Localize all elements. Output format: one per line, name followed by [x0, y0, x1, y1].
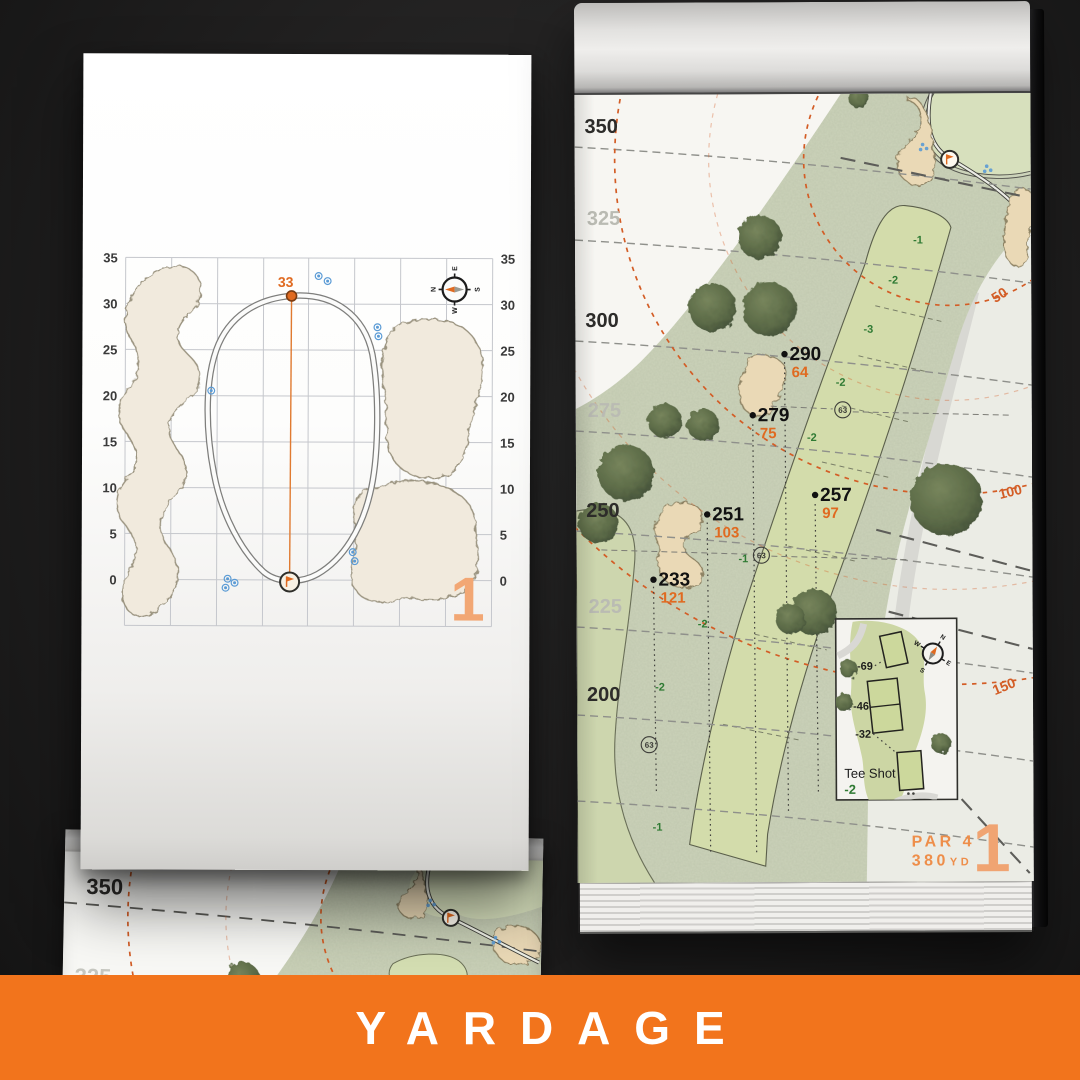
svg-text:10: 10 — [102, 480, 117, 495]
svg-text:W: W — [912, 640, 922, 650]
strip-dividers — [721, 305, 943, 740]
tree-icon — [922, 699, 956, 733]
tree-icon — [848, 93, 868, 108]
svg-text:275: 275 — [588, 400, 621, 422]
tee-shot-label: Tee Shot — [844, 766, 896, 781]
hole-map: 63 63 63 — [574, 93, 1033, 883]
tree-icon — [578, 503, 618, 543]
bunker-shape — [739, 355, 786, 417]
sprinkler-icon — [375, 333, 382, 340]
yardage-book-mockup: 350 325 35 — [0, 0, 1080, 1080]
carry-marker: 233 121 — [650, 570, 690, 607]
yardage-banner: YARDAGE — [0, 975, 1080, 1080]
tee-ground — [850, 620, 926, 801]
tree-icon — [931, 733, 951, 753]
hole-number: 1 — [450, 566, 485, 635]
hole-footer: PAR 4 380YD 1 — [911, 810, 1010, 883]
distance-label: 350 — [86, 874, 123, 900]
flag-pin-icon — [941, 151, 958, 168]
svg-text:325: 325 — [587, 208, 620, 230]
pin-depth-label: 33 — [278, 274, 294, 290]
svg-text:251: 251 — [712, 504, 744, 525]
hole-map-book: 63 63 63 — [574, 1, 1048, 937]
svg-text:300: 300 — [585, 310, 618, 332]
svg-text:E: E — [945, 660, 953, 669]
axis-labels-right: 35 30 25 20 15 10 5 0 — [500, 252, 516, 589]
sprinkler-icon — [374, 324, 381, 331]
svg-text:S: S — [918, 667, 926, 676]
slope-numbers: -1 -2 -3 -2 -2 -1 -2 -2 -1 — [650, 235, 925, 834]
svg-text:250: 250 — [586, 500, 619, 522]
hole-number: 1 — [973, 810, 1011, 883]
svg-text:-2: -2 — [888, 275, 898, 287]
tee-box — [867, 678, 902, 733]
hole-map-page: 63 63 63 — [574, 93, 1033, 883]
putting-green — [923, 93, 1031, 177]
svg-text:97: 97 — [822, 505, 839, 522]
green-detail-map: 35 30 25 20 15 10 5 0 35 30 25 20 15 10 … — [81, 53, 532, 871]
svg-text:-32: -32 — [855, 729, 871, 741]
bunker-shape — [655, 502, 703, 587]
tree-icon — [835, 693, 853, 711]
cart-path — [928, 93, 1028, 221]
tree-icon — [598, 445, 654, 501]
svg-text:100: 100 — [997, 481, 1024, 502]
tree-icon — [648, 404, 682, 438]
svg-text:-1: -1 — [653, 822, 663, 834]
svg-text:0: 0 — [109, 572, 116, 587]
sprinkler-icon — [224, 575, 231, 582]
svg-text:30: 30 — [501, 298, 516, 313]
svg-text:63: 63 — [645, 741, 654, 750]
svg-text:20: 20 — [103, 388, 118, 403]
bunker-shape — [897, 98, 935, 186]
north-needle — [931, 645, 940, 655]
page-stack-edge — [580, 881, 1032, 934]
tree-icon — [688, 283, 736, 331]
carry-markers: 290 64 279 75 257 97 — [649, 344, 852, 607]
svg-text:257: 257 — [820, 485, 852, 506]
range-arcs — [574, 93, 1033, 687]
svg-text:-2: -2 — [807, 432, 817, 444]
svg-text:121: 121 — [661, 590, 686, 607]
tree-icon — [776, 604, 806, 634]
svg-text:233: 233 — [658, 570, 690, 591]
total-yardage: 380YD — [912, 852, 973, 869]
svg-text:20: 20 — [500, 390, 515, 405]
svg-text:35: 35 — [501, 252, 516, 267]
trees — [576, 93, 983, 782]
svg-text:5: 5 — [109, 526, 116, 541]
svg-text:-1: -1 — [738, 553, 748, 565]
svg-text:N: N — [939, 634, 947, 643]
svg-text:225: 225 — [589, 596, 622, 618]
hazard-circles: 63 63 63 — [601, 401, 1012, 753]
green-outline — [207, 295, 378, 581]
svg-text:350: 350 — [584, 116, 617, 138]
carry-marker: 257 97 — [812, 485, 852, 522]
svg-text:279: 279 — [758, 405, 790, 426]
svg-text:64: 64 — [792, 364, 809, 381]
svg-text:75: 75 — [760, 425, 777, 442]
svg-text:-2: -2 — [698, 618, 708, 630]
green-detail-page: 35 30 25 20 15 10 5 0 35 30 25 20 15 10 … — [81, 53, 532, 871]
tee-shot-slope: -2 — [844, 782, 856, 797]
svg-text:35: 35 — [103, 250, 118, 265]
carry-marker: 279 75 — [750, 405, 790, 442]
svg-text:10: 10 — [500, 482, 515, 497]
svg-text:W: W — [452, 307, 459, 314]
axis-labels-left: 35 30 25 20 15 10 5 0 — [102, 250, 118, 587]
waste-area — [864, 219, 1034, 883]
landing-strip — [687, 205, 954, 866]
tree-icon — [791, 589, 837, 635]
svg-text:25: 25 — [103, 342, 118, 357]
par-label: PAR 4 — [912, 833, 976, 850]
tree-icon — [742, 282, 796, 336]
tee-box — [897, 751, 924, 791]
svg-text:103: 103 — [714, 524, 739, 541]
sprinkler-icon — [231, 579, 238, 586]
carry-marker: 251 103 — [704, 504, 744, 541]
sprinkler-icon — [324, 278, 331, 285]
tee-box — [880, 632, 908, 668]
cart-path-band — [895, 291, 974, 665]
svg-text:-69: -69 — [857, 661, 873, 673]
tee-measure-lines — [653, 362, 819, 855]
svg-text:63: 63 — [757, 551, 766, 560]
svg-text:5: 5 — [500, 528, 507, 543]
svg-text:E: E — [452, 266, 459, 271]
tree-icon — [687, 408, 719, 440]
sprinkler-icon — [315, 273, 322, 280]
compass-icon: N E S W — [431, 266, 482, 314]
svg-text:150: 150 — [990, 674, 1018, 698]
svg-text:-3: -3 — [863, 324, 873, 336]
sprinkler-icon — [222, 584, 229, 591]
tee-inset: -69 -46 -32 Tee Shot -2 — [835, 618, 964, 802]
svg-text:S: S — [475, 287, 482, 292]
svg-text:-1: -1 — [913, 235, 923, 247]
tree-icon — [920, 752, 948, 780]
pin-dot — [287, 291, 297, 301]
svg-text:63: 63 — [838, 406, 847, 415]
flag-pin-icon — [280, 572, 299, 591]
arc-labels: 50 100 150 — [988, 284, 1024, 698]
svg-text:30: 30 — [103, 296, 118, 311]
svg-text:15: 15 — [500, 436, 515, 451]
distance-lines — [575, 145, 1034, 849]
tree-icon — [738, 215, 782, 259]
carry-marker: 290 64 — [781, 344, 821, 381]
sprinkler-icon — [919, 142, 993, 173]
svg-text:-46: -46 — [853, 701, 869, 713]
tree-icon — [910, 463, 982, 535]
tree-icon — [840, 660, 858, 678]
svg-text:-2: -2 — [655, 682, 665, 694]
svg-text:200: 200 — [587, 684, 620, 706]
left-rough-zone — [576, 509, 656, 883]
svg-text:25: 25 — [500, 344, 515, 359]
svg-text:50: 50 — [988, 284, 1010, 306]
flag-pin-icon — [443, 910, 459, 926]
svg-text:0: 0 — [500, 574, 507, 589]
compass-icon: N E S W — [902, 623, 963, 685]
svg-text:290: 290 — [789, 344, 821, 365]
svg-text:15: 15 — [103, 434, 118, 449]
svg-text:-2: -2 — [836, 377, 846, 389]
bunker-shape — [381, 319, 482, 479]
boundary-dashes — [841, 157, 1034, 874]
distance-labels: 350 325 300 275 250 225 200 — [584, 116, 622, 706]
bunker-shape — [1004, 189, 1034, 267]
svg-text:N: N — [431, 287, 438, 292]
banner-title: YARDAGE — [0, 975, 1080, 1080]
flipped-pages-curl — [574, 1, 1030, 95]
